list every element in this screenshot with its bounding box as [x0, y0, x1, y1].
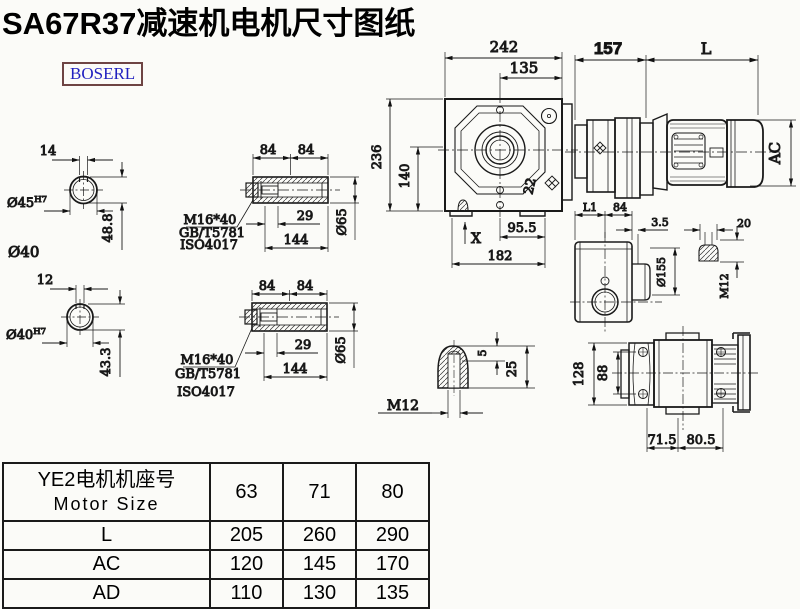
dim-84b-bot: 84	[297, 279, 314, 294]
dim-stud-len: 20	[737, 217, 751, 230]
dim-dia-bot: Ø65	[334, 336, 349, 363]
table-header-size-71: 71	[283, 463, 356, 521]
dim-front-axis: 140	[398, 164, 413, 189]
dim-front-height: 236	[370, 145, 385, 170]
dim-small-od: Ø155	[655, 257, 668, 287]
dim-depth-45: 48.8	[101, 214, 116, 243]
dim-inset-top: 29	[297, 209, 314, 224]
dim-plug-5: 5	[476, 350, 489, 357]
dim-front-base: 182	[488, 249, 513, 264]
dim-plug-thread: M12	[387, 398, 419, 414]
dim-inset-bot: 29	[295, 338, 312, 353]
motor-size-table: YE2电机机座号 Motor Size 63 71 80 L 205 260 2…	[2, 462, 430, 609]
header-en: Motor Size	[4, 493, 209, 516]
table-row-AD: AD 110 130 135	[3, 579, 429, 608]
dim-rear-715: 71.5	[648, 433, 677, 448]
gearmotor-rear-view: 128 88 71.5 80.5	[572, 326, 758, 452]
callout-bolt-bot: M16*40	[181, 353, 234, 368]
callout-gb-bot: GB/T5781	[175, 367, 241, 382]
label-shaft-40: Ø40	[8, 243, 39, 261]
solid-shaft-45-view: 14 Ø45H7 48.8 Ø40	[7, 144, 127, 261]
gearbox-small-side-view: L1 84 3.5 Ø155 20	[570, 201, 751, 332]
dim-front-width: 242	[490, 38, 519, 56]
cell-AC-63: 120	[210, 550, 283, 579]
dim-side-AC: AC	[766, 142, 784, 165]
dim-key-width-40: 12	[37, 273, 54, 288]
dim-length-bot: 144	[283, 362, 308, 377]
header-cn: YE2电机机座号	[4, 468, 209, 493]
row-label-AC: AC	[3, 550, 210, 579]
table-row: YE2电机机座号 Motor Size 63 71 80	[3, 463, 429, 521]
dim-dia-top: Ø65	[335, 208, 350, 235]
solid-shaft-40-view: 12 Ø40H7 43.3	[6, 273, 125, 377]
table-header-size-80: 80	[356, 463, 429, 521]
dim-rear-88: 88	[596, 365, 611, 382]
table-header-motor-size: YE2电机机座号 Motor Size	[3, 463, 210, 521]
callout-iso-bot: ISO4017	[177, 385, 235, 400]
dim-length-top: 144	[284, 233, 309, 248]
dim-84a-bot: 84	[259, 279, 276, 294]
table-row-AC: AC 120 145 170	[3, 550, 429, 579]
dim-stud-thread: M12	[718, 273, 731, 298]
dim-side-L: L	[701, 39, 712, 58]
table-header-size-63: 63	[210, 463, 283, 521]
dim-depth-40: 43.3	[99, 348, 114, 377]
dim-front-offset: 135	[510, 59, 539, 77]
dim-small-flange: 3.5	[651, 216, 669, 229]
plug-detail-view: 5 25 M12	[378, 332, 535, 418]
dim-small-84: 84	[613, 201, 627, 214]
dim-diameter-45: Ø45H7	[7, 195, 47, 211]
cell-AD-63: 110	[210, 579, 283, 608]
dim-front-angle: 22	[522, 177, 540, 196]
dim-84b-top: 84	[298, 143, 315, 158]
dim-key-width-45: 14	[40, 144, 57, 159]
cell-AD-71: 130	[283, 579, 356, 608]
hollow-shaft-bottom-view: 84 84 M16*40 GB/T5781 ISO4017 29 144	[175, 279, 358, 400]
dim-84a-top: 84	[260, 143, 277, 158]
table-row-L: L 205 260 290	[3, 521, 429, 550]
cell-AC-71: 145	[283, 550, 356, 579]
dim-small-L1: L1	[583, 201, 597, 214]
cell-L-63: 205	[210, 521, 283, 550]
dim-side-157: 157	[594, 39, 622, 58]
cell-AC-80: 170	[356, 550, 429, 579]
gearmotor-side-view: 157 L AC	[565, 39, 796, 198]
row-label-AD: AD	[3, 579, 210, 608]
gearbox-front-view: 242 135 236 140 22 X	[370, 38, 578, 268]
hollow-shaft-top-view: 84 84 M16*40 GB/T5781 ISO4017 29 144	[179, 143, 359, 253]
dim-rear-128: 128	[572, 362, 587, 387]
dim-front-boltspan: 95.5	[508, 221, 537, 236]
cell-L-80: 290	[356, 521, 429, 550]
row-label-L: L	[3, 521, 210, 550]
callout-iso-top: ISO4017	[180, 238, 238, 253]
cell-AD-80: 135	[356, 579, 429, 608]
mark-x: X	[471, 231, 481, 247]
dim-diameter-40: Ø40H7	[6, 327, 46, 343]
dim-rear-805: 80.5	[687, 433, 716, 448]
drawing-sheet: SA67R37减速机电机尺寸图纸 BOSERL 14	[0, 0, 800, 609]
cell-L-71: 260	[283, 521, 356, 550]
dim-plug-25: 25	[505, 361, 520, 378]
